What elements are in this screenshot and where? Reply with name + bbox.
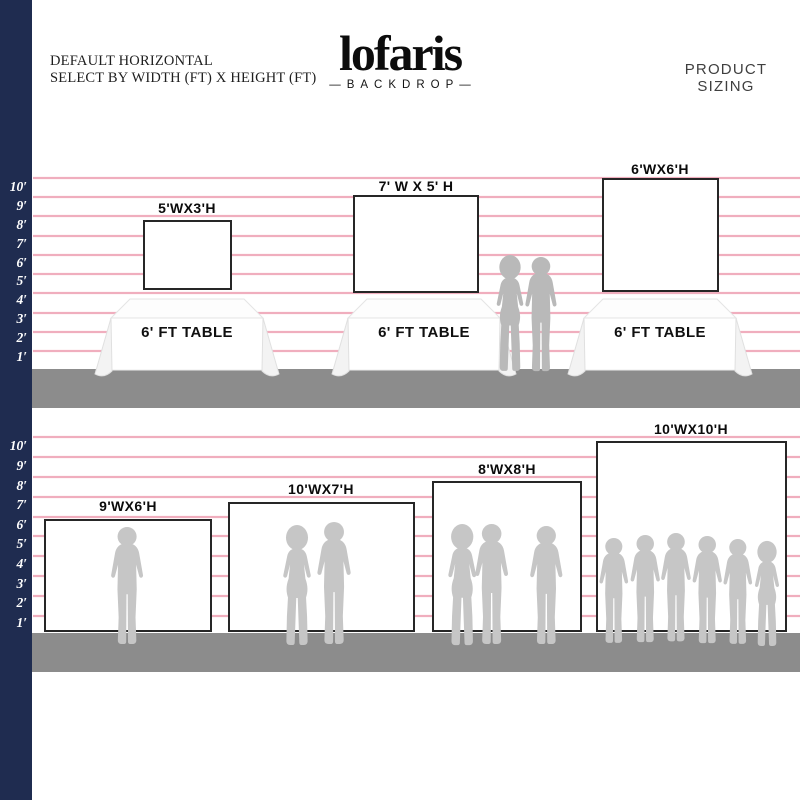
ruler-label: 6′ — [0, 254, 27, 271]
row2-silhouettes — [111, 522, 779, 646]
logo-dash-left: — — [329, 79, 347, 91]
backdrop-size-label: 10'WX7'H — [246, 481, 396, 497]
logo-tagline-text: BACKDROP — [347, 79, 460, 91]
ruler-label: 3′ — [0, 575, 27, 592]
ruler-label: 2′ — [0, 329, 27, 346]
woman-silhouette — [755, 541, 779, 646]
floor-row2 — [32, 633, 800, 672]
man-silhouette — [631, 535, 660, 642]
ruler-label: 2′ — [0, 594, 27, 611]
table-label: 6' FT TABLE — [107, 324, 267, 342]
logo-name: lofaris — [250, 28, 550, 78]
logo-tagline: —BACKDROP— — [250, 79, 550, 91]
ruler-label: 1′ — [0, 348, 27, 365]
man-silhouette — [724, 539, 753, 644]
backdrop-size-label: 6'WX6'H — [585, 161, 735, 177]
ruler-label: 8′ — [0, 477, 27, 494]
woman-silhouette — [448, 524, 476, 645]
logo-dash-right: — — [459, 79, 477, 91]
backdrop-size-label: 9'WX6'H — [53, 498, 203, 514]
ruler-label: 8′ — [0, 216, 27, 233]
table-label: 6' FT TABLE — [344, 324, 504, 342]
ruler-label: 7′ — [0, 496, 27, 513]
couple-silhouette — [497, 255, 557, 371]
ruler-label: 5′ — [0, 272, 27, 289]
backdrop-size-label: 10'WX10'H — [616, 421, 766, 437]
man-silhouette — [661, 533, 691, 641]
ruler-label: 6′ — [0, 516, 27, 533]
floor-row1 — [32, 369, 800, 408]
ruler-label: 1′ — [0, 614, 27, 631]
product-sizing-label: PRODUCT SIZING — [656, 61, 796, 95]
woman-silhouette — [283, 525, 310, 645]
ruler-label: 10′ — [0, 178, 27, 195]
ruler-label: 4′ — [0, 291, 27, 308]
man-silhouette — [693, 536, 722, 643]
ruler-label: 3′ — [0, 310, 27, 327]
ruler-label: 4′ — [0, 555, 27, 572]
man-silhouette — [600, 538, 629, 643]
backdrop-size-label: 8'WX8'H — [432, 461, 582, 477]
backdrop-size-label: 5'WX3'H — [112, 200, 262, 216]
man-silhouette — [530, 526, 562, 644]
ruler-label: 7′ — [0, 235, 27, 252]
ruler-label: 9′ — [0, 457, 27, 474]
scene-art — [0, 0, 800, 800]
man-silhouette — [317, 522, 350, 644]
man-silhouette — [475, 524, 508, 644]
man-silhouette — [525, 257, 556, 371]
ruler-label: 9′ — [0, 197, 27, 214]
logo: lofaris —BACKDROP— — [250, 28, 550, 91]
ruler-label: 10′ — [0, 437, 27, 454]
table-label: 6' FT TABLE — [580, 324, 740, 342]
backdrop-size-label: 7' W X 5' H — [341, 178, 491, 194]
ruler-label: 5′ — [0, 535, 27, 552]
product-sizing-chart: DEFAULT HORIZONTAL SELECT BY WIDTH (FT) … — [0, 0, 800, 800]
man-silhouette — [111, 527, 143, 644]
